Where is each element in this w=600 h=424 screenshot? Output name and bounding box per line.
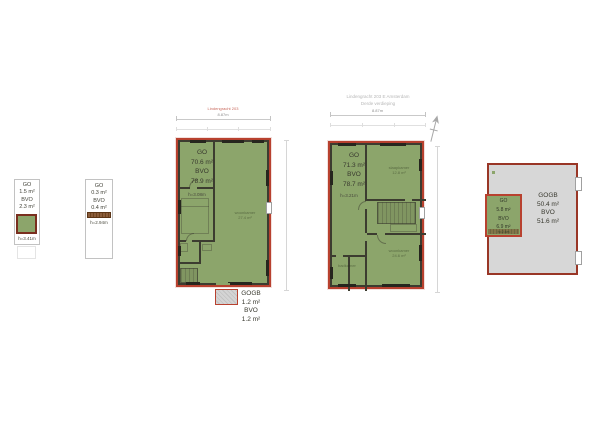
- wall-segment: [385, 233, 426, 235]
- plan2-go-label: GO: [82, 183, 116, 190]
- bed-pillow-line: [181, 206, 209, 207]
- closet-symbol: [390, 224, 417, 232]
- plan4-height-dim-line: [437, 146, 438, 292]
- door-opening: [216, 283, 230, 285]
- plan4-bvo-label: BVO: [334, 170, 374, 180]
- plan4-height: h=3.21m: [334, 193, 364, 198]
- plan3-bvo-value: 78.9 m²: [182, 177, 222, 187]
- window-segment: [228, 282, 252, 285]
- room-area: 24.6 m²: [382, 253, 416, 258]
- window-segment: [266, 260, 269, 276]
- window-segment: [178, 200, 181, 214]
- wall-segment: [367, 233, 377, 235]
- wall-segment: [365, 209, 367, 233]
- window-segment: [382, 284, 410, 287]
- cabin-go-label: GO: [487, 197, 520, 206]
- dim-tick: [435, 292, 440, 293]
- north-arrow-icon: [425, 113, 443, 145]
- plan4-room-top-label: slaapkamer 12.8 m²: [382, 165, 416, 175]
- window-segment: [419, 159, 422, 171]
- wall-segment: [367, 199, 405, 201]
- terrace-bvo-label: BVO: [519, 209, 577, 218]
- floorplan-sheet: Lindengracht 203 E Amsterdam Derde verdi…: [0, 0, 600, 424]
- plan3-room-label: woonkamer 27.4 m²: [228, 210, 262, 220]
- sheet-title-line1: Lindengracht 203 E Amsterdam: [322, 94, 434, 99]
- dim-tick: [238, 127, 239, 131]
- wall-segment: [343, 255, 365, 257]
- plan5-areas: GOGB 50.4 m² BVO 51.6 m²: [519, 192, 577, 227]
- window-bay: [266, 202, 272, 214]
- wall-segment: [199, 240, 201, 264]
- plan3-width-dim-line: [176, 119, 270, 120]
- terrace-gogb-label: GOGB: [519, 192, 577, 201]
- window-segment: [338, 284, 356, 287]
- window-segment: [330, 267, 333, 279]
- stairs-symbol: [377, 202, 416, 224]
- plan2-bvo-label: BVO: [82, 198, 116, 205]
- window-segment: [380, 143, 406, 146]
- wall-segment: [365, 241, 367, 291]
- dim-tick: [362, 123, 363, 127]
- plan3-go-label: GO: [182, 148, 222, 158]
- plan4-segment-dim-line: [330, 125, 425, 126]
- plan4-width-dim-line: [330, 115, 425, 116]
- plan5-cabin-areas: GO 5.8 m² BVO 6.9 m²: [487, 197, 520, 232]
- door-arc: [186, 233, 194, 241]
- wall-segment: [178, 262, 201, 264]
- dim-tick: [176, 116, 177, 121]
- plan5-cabin: GO 5.8 m² BVO 6.9 m² h=2.4m: [485, 194, 522, 237]
- plan4-room-bottom-label: woonkamer 24.6 m²: [382, 248, 416, 258]
- room-area: 12.8 m²: [382, 170, 416, 175]
- porch-gogb-value: 1.2 m²: [233, 299, 269, 308]
- plan4-floorplan: GO 71.3 m² BVO 78.7 m² h=3.21m slaapkame…: [328, 141, 424, 289]
- plan4-go-label: GO: [334, 151, 374, 161]
- plan4-width-dim-label: 8.87m: [330, 108, 425, 113]
- window-segment: [222, 140, 244, 143]
- plan4-areas: GO 71.3 m² BVO 78.7 m²: [334, 151, 374, 189]
- window-segment: [178, 246, 181, 256]
- cabin-height: h=2.4m: [487, 230, 520, 234]
- plan1-height: h=3.41m: [11, 236, 43, 241]
- stairs-symbol: [180, 268, 198, 283]
- terrace-marker: [492, 171, 495, 174]
- plan2-go-value: 0.3 m²: [82, 190, 116, 197]
- window-segment: [190, 140, 206, 143]
- plan1-room: [16, 214, 37, 234]
- window-segment: [266, 170, 269, 186]
- porch-bvo-value: 1.2 m²: [233, 316, 269, 325]
- sheet-title-line2: Derde verdieping: [322, 101, 434, 106]
- plan4-bvo-value: 78.7 m²: [334, 180, 374, 190]
- plan4-room-left-label: badkamer: [332, 263, 362, 268]
- dim-tick: [176, 127, 177, 131]
- plan2-areas: GO 0.3 m² BVO 0.4 m²: [82, 183, 116, 213]
- dim-tick: [330, 123, 331, 127]
- bath-fixture: [180, 243, 188, 252]
- plan1-bvo-value: 2.3 m²: [11, 204, 43, 211]
- wall-segment: [178, 240, 186, 242]
- plan2-stairs: [87, 212, 111, 218]
- terrace-edge-detail: [575, 177, 582, 191]
- wall-segment: [412, 199, 426, 201]
- plan1-go-label: GO: [11, 182, 43, 189]
- window-bay: [419, 207, 425, 219]
- plan1-bvo-label: BVO: [11, 197, 43, 204]
- room-name: badkamer: [332, 263, 362, 268]
- plan3-width-dim-label: 8.87m: [176, 112, 270, 117]
- cabin-go-value: 5.8 m²: [487, 206, 520, 215]
- bed-symbol: [181, 198, 209, 234]
- dim-tick: [435, 146, 440, 147]
- terrace-bvo-value: 51.6 m²: [519, 218, 577, 227]
- plan3-street-label: Lindengracht 203: [176, 106, 270, 111]
- plan3-height: h=3.08m: [182, 192, 212, 197]
- dim-tick: [284, 140, 289, 141]
- porch-bvo-label: BVO: [233, 307, 269, 316]
- window-segment: [330, 171, 333, 185]
- terrace-edge-detail: [575, 251, 582, 265]
- room-area: 27.4 m²: [228, 215, 262, 220]
- door-arc: [358, 201, 366, 210]
- plan3-height-dim-line: [286, 140, 287, 290]
- plan3-segment-dim-line: [176, 129, 270, 130]
- wall-segment: [192, 240, 215, 242]
- dim-tick: [330, 112, 331, 117]
- wall-segment: [330, 255, 336, 257]
- plan3-porch-areas: GOGB 1.2 m² BVO 1.2 m²: [233, 290, 269, 324]
- plan5-terrace: GO 5.8 m² BVO 6.9 m² h=2.4m GOGB 50.4 m²…: [487, 163, 578, 275]
- plan4-go-value: 71.3 m²: [334, 161, 374, 171]
- window-segment: [419, 245, 422, 261]
- dim-tick: [207, 127, 208, 131]
- plan2-height: h=2.94m: [83, 220, 115, 225]
- dim-tick: [284, 290, 289, 291]
- window-segment: [252, 140, 264, 143]
- plan1-go-value: 1.5 m²: [11, 189, 43, 196]
- plan3-areas: GO 70.6 m² BVO 78.9 m²: [182, 148, 222, 186]
- dim-tick: [394, 123, 395, 127]
- cabin-bvo-label: BVO: [487, 215, 520, 224]
- window-segment: [338, 143, 356, 146]
- dim-tick: [270, 127, 271, 131]
- door-arc: [377, 235, 386, 244]
- plan3-floorplan: GO 70.6 m² BVO 78.9 m² h=3.08m woonkamer…: [176, 138, 271, 287]
- plan1-lower-outline: [17, 246, 36, 259]
- wall-segment: [197, 187, 215, 189]
- bath-fixture: [202, 244, 212, 251]
- plan1-areas: GO 1.5 m² BVO 2.3 m²: [11, 182, 43, 212]
- plan3-bvo-label: BVO: [182, 167, 222, 177]
- porch-gogb-label: GOGB: [233, 290, 269, 299]
- dim-tick: [270, 116, 271, 121]
- terrace-gogb-value: 50.4 m²: [519, 201, 577, 210]
- window-segment: [186, 282, 200, 285]
- plan3-go-value: 70.6 m²: [182, 158, 222, 168]
